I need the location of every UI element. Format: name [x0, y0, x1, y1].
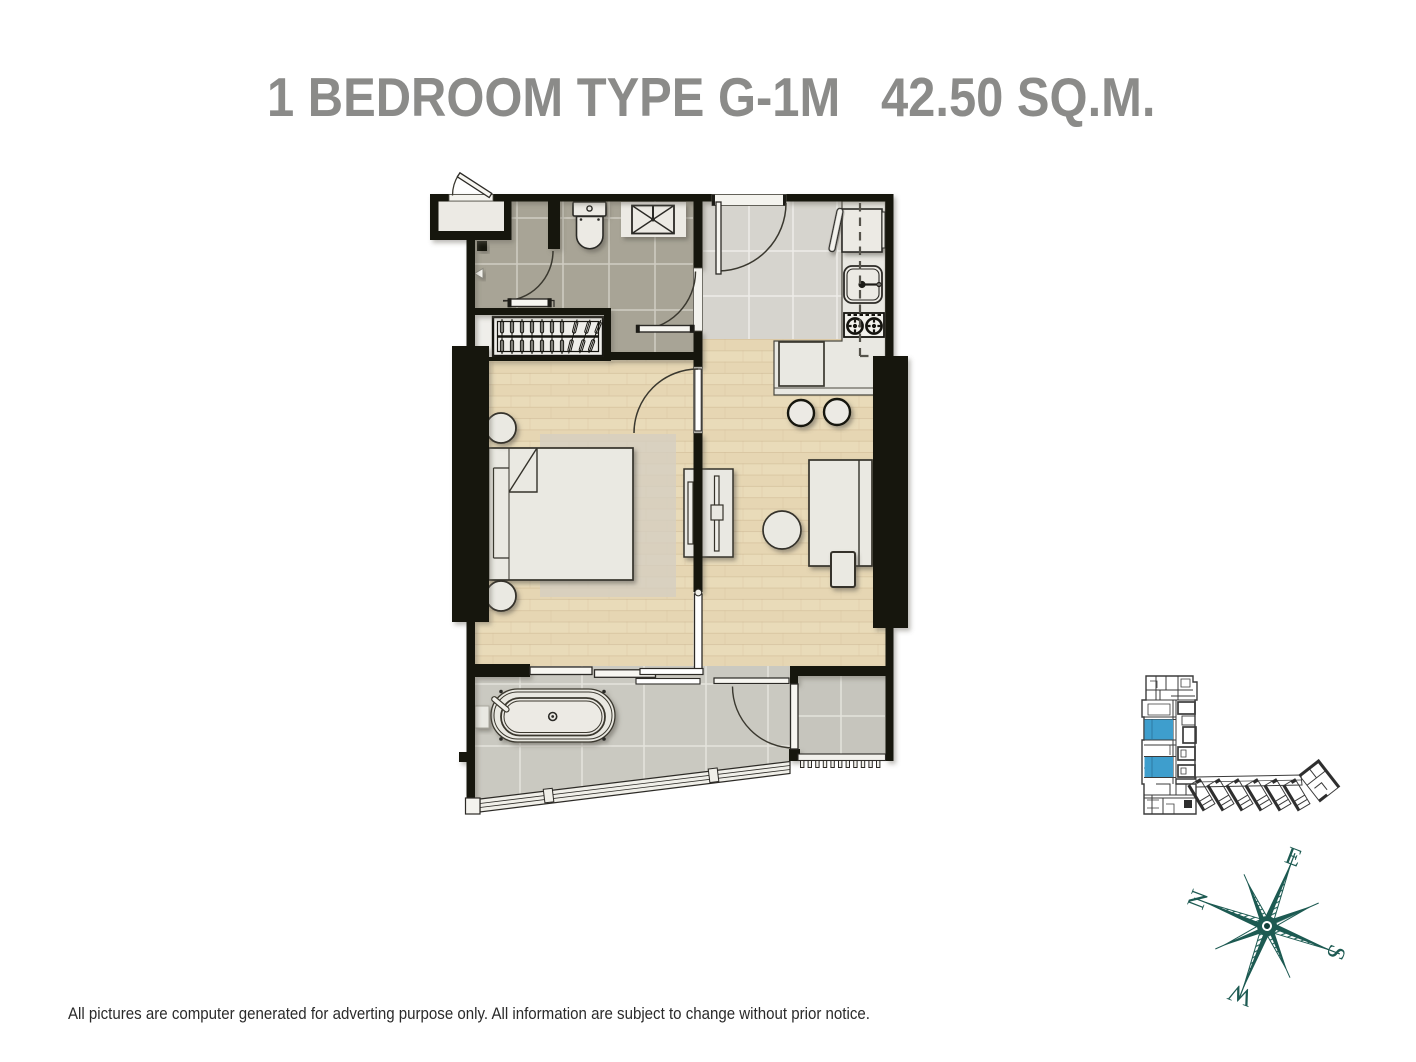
svg-text:W: W: [1224, 978, 1256, 1012]
svg-text:E: E: [1281, 842, 1305, 873]
svg-text:S: S: [1321, 941, 1351, 964]
svg-text:N: N: [1183, 886, 1215, 913]
